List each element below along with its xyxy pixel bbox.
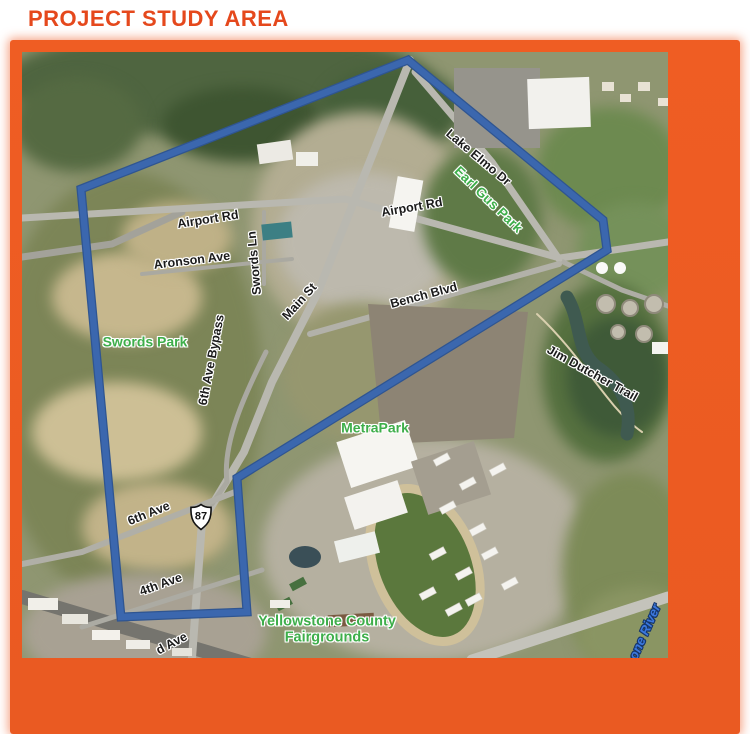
- buildings-layer: [28, 68, 668, 658]
- map-art: [22, 52, 668, 658]
- orange-frame: 87 Lake Elmo DrEarl Gus ParkAirport RdAi…: [10, 40, 740, 734]
- page-title: PROJECT STUDY AREA: [28, 6, 289, 32]
- project-study-area-figure: PROJECT STUDY AREA: [0, 0, 750, 734]
- shield-number: 87: [195, 511, 207, 523]
- satellite-map: 87 Lake Elmo DrEarl Gus ParkAirport RdAi…: [22, 52, 668, 658]
- us-route-87-shield: 87: [189, 503, 213, 531]
